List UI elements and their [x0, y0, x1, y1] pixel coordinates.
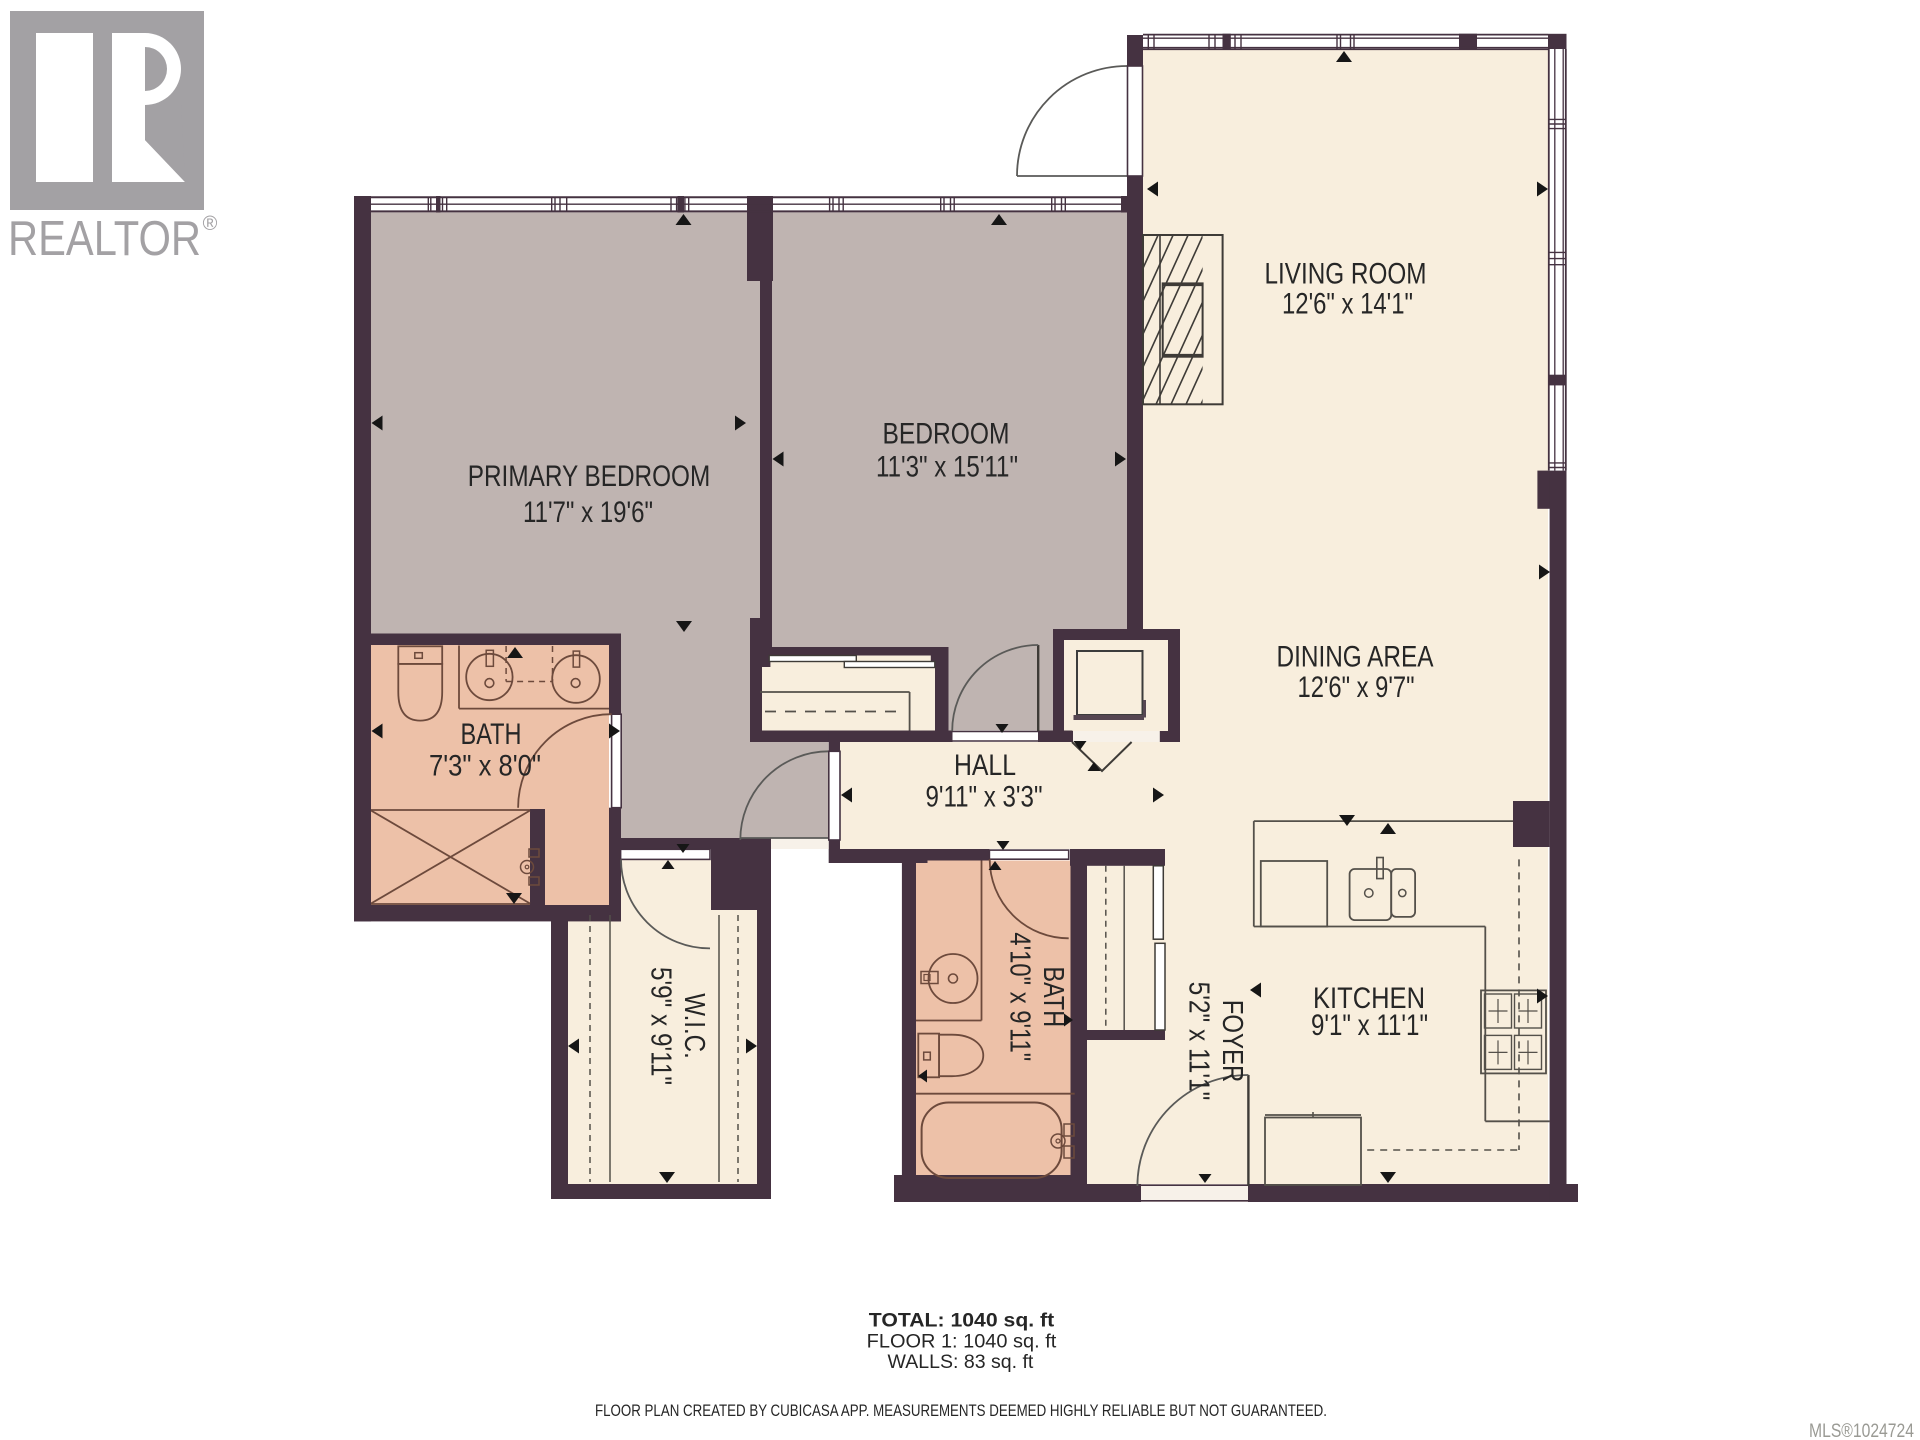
svg-text:WALLS: 83 sq. ft: WALLS: 83 sq. ft: [888, 1351, 1034, 1373]
svg-text:LIVING ROOM: LIVING ROOM: [1265, 258, 1427, 291]
svg-text:DINING AREA: DINING AREA: [1277, 641, 1434, 674]
svg-text:BEDROOM: BEDROOM: [883, 418, 1010, 451]
svg-text:REALTOR: REALTOR: [8, 212, 201, 266]
svg-text:®: ®: [203, 213, 218, 235]
svg-text:9'1" x 11'1": 9'1" x 11'1": [1311, 1009, 1428, 1042]
svg-text:W.I.C.: W.I.C.: [678, 993, 710, 1059]
svg-text:12'6" x 9'7": 12'6" x 9'7": [1298, 671, 1415, 704]
svg-text:MLS®1024724: MLS®1024724: [1809, 1420, 1914, 1440]
svg-text:12'6" x 14'1": 12'6" x 14'1": [1282, 287, 1413, 320]
svg-text:5'9" x 9'11": 5'9" x 9'11": [645, 967, 677, 1085]
svg-text:7'3" x 8'0": 7'3" x 8'0": [429, 750, 541, 783]
svg-text:FLOOR 1: 1040 sq. ft: FLOOR 1: 1040 sq. ft: [867, 1331, 1057, 1353]
svg-text:5'2" x 11'1": 5'2" x 11'1": [1183, 982, 1215, 1101]
svg-text:BATH: BATH: [1037, 967, 1069, 1028]
svg-text:BATH: BATH: [461, 718, 522, 751]
svg-text:TOTAL: 1040 sq. ft: TOTAL: 1040 sq. ft: [869, 1310, 1055, 1332]
svg-text:9'11" x 3'3": 9'11" x 3'3": [926, 781, 1043, 814]
svg-text:4'10" x 9'11": 4'10" x 9'11": [1003, 932, 1035, 1061]
svg-text:11'7" x 19'6": 11'7" x 19'6": [523, 496, 653, 529]
svg-text:11'3" x 15'11": 11'3" x 15'11": [876, 450, 1018, 483]
svg-text:FLOOR PLAN CREATED BY CUBICASA: FLOOR PLAN CREATED BY CUBICASA APP. MEAS…: [595, 1402, 1327, 1420]
svg-text:HALL: HALL: [954, 749, 1016, 782]
svg-text:PRIMARY BEDROOM: PRIMARY BEDROOM: [468, 460, 711, 493]
svg-text:FOYER: FOYER: [1216, 1000, 1248, 1083]
